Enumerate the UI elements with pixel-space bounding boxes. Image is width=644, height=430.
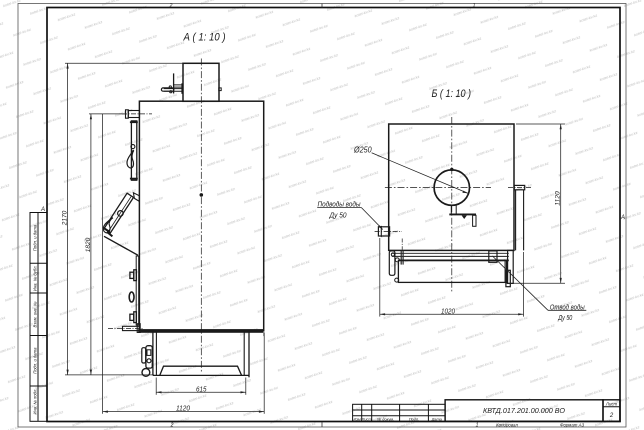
svg-text:1120: 1120 — [176, 406, 190, 413]
svg-text:А: А — [620, 215, 625, 221]
svg-text:КВТД.017.201.00.000 ВО: КВТД.017.201.00.000 ВО — [483, 406, 565, 415]
svg-text:Формат А3: Формат А3 — [560, 422, 585, 427]
svg-text:Ду 50: Ду 50 — [329, 211, 347, 220]
svg-text:№ докум.: № докум. — [377, 416, 394, 421]
svg-text:2: 2 — [609, 413, 614, 419]
svg-text:Копировал: Копировал — [496, 422, 518, 427]
svg-text:Лист: Лист — [361, 416, 373, 421]
svg-text:1820: 1820 — [85, 238, 92, 253]
svg-text:Лист: Лист — [605, 402, 618, 407]
svg-text:Б ( 1: 10 ): Б ( 1: 10 ) — [432, 88, 472, 100]
svg-text:1020: 1020 — [441, 309, 455, 316]
svg-text:Ду 50: Ду 50 — [558, 315, 573, 322]
svg-text:Инв. № подл.: Инв. № подл. — [32, 389, 37, 415]
svg-text:615: 615 — [196, 386, 207, 393]
svg-text:1120: 1120 — [555, 191, 562, 206]
svg-text:1: 1 — [476, 423, 479, 429]
svg-text:Дата: Дата — [431, 416, 443, 421]
svg-text:Инв. № дубл.: Инв. № дубл. — [32, 265, 37, 291]
svg-text:Изм: Изм — [353, 416, 361, 421]
svg-text:Взам. инв. №: Взам. инв. № — [32, 301, 37, 327]
svg-text:Отвод воды: Отвод воды — [550, 303, 586, 311]
svg-text:Подп.: Подп. — [409, 416, 419, 421]
svg-text:2: 2 — [169, 3, 173, 9]
svg-text:Подп. и дата: Подп. и дата — [32, 224, 37, 251]
svg-text:Подп. и дата: Подп. и дата — [32, 347, 37, 374]
svg-text:А ( 1: 10 ): А ( 1: 10 ) — [183, 31, 226, 43]
svg-text:2170: 2170 — [61, 211, 68, 227]
svg-text:Ø250: Ø250 — [353, 145, 372, 154]
svg-text:2: 2 — [170, 423, 174, 429]
svg-text:Подводы воды: Подводы воды — [318, 199, 362, 208]
svg-text:1: 1 — [473, 3, 476, 9]
